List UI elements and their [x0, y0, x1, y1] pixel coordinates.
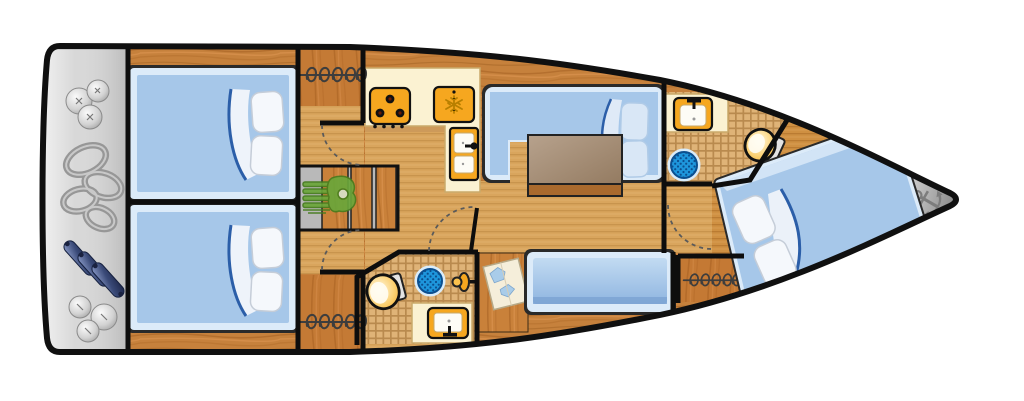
- floorplan-svg: ⚓: [0, 0, 1024, 401]
- yacht-floorplan: ⚓: [0, 0, 1024, 401]
- salon-dinette: [482, 84, 666, 196]
- pillow: [620, 103, 648, 141]
- pillow: [620, 141, 648, 178]
- shower-drain-icon: [671, 152, 697, 178]
- stove-icon: [370, 88, 410, 124]
- wardrobe-port: [298, 48, 366, 106]
- stern-storage: [40, 40, 128, 360]
- aft-cabin-starboard: [127, 202, 299, 333]
- salon-bench: [524, 249, 676, 315]
- aft-cabin-port: [127, 65, 299, 202]
- companionway-steps: [298, 166, 398, 230]
- nav-station: [478, 253, 529, 332]
- salon-table: [528, 135, 622, 196]
- shower-drain-icon: [418, 269, 442, 293]
